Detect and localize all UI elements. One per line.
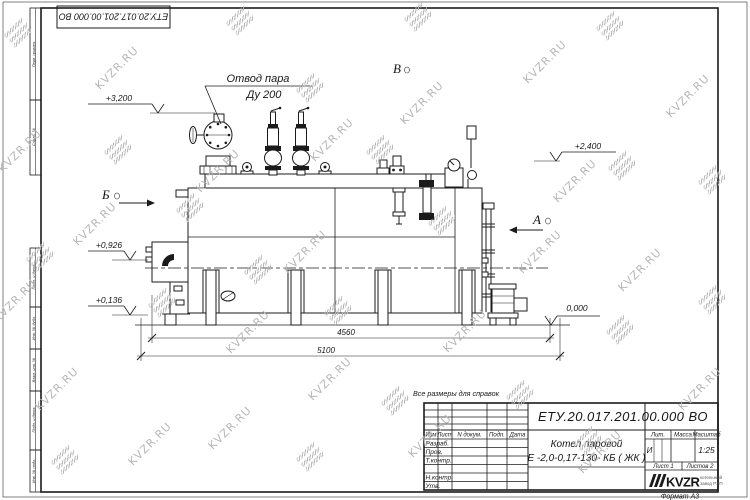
elevation-mark: +0,136	[88, 295, 148, 315]
elevation-mark: +2,400	[534, 141, 616, 161]
side-column-label: Инв. № подл.	[31, 459, 36, 484]
safety-valve	[293, 107, 310, 175]
col-header: Лист	[436, 433, 452, 439]
boiler-shell	[174, 174, 482, 313]
main-steam-valve	[190, 114, 237, 174]
view-letter: В	[393, 61, 401, 76]
title-block: ЕТУ.20.017.201.00.000 ВО Изм Лист N доку…	[424, 403, 723, 490]
support-leg	[375, 270, 391, 325]
elevation-value: 0,000	[566, 303, 588, 313]
sig-row-label: Н.контр.	[426, 475, 454, 482]
boiler-side-view	[135, 107, 570, 325]
sheets-total: Листов 2	[686, 464, 715, 470]
safety-valve	[265, 107, 282, 175]
dimension-5100: 5100	[137, 318, 564, 361]
blowdown-valve-assembly	[488, 284, 527, 325]
side-column-label: Перв. примен.	[31, 41, 36, 68]
side-column-label: Подп. и дата	[31, 407, 36, 433]
top-stamp-doc-number: ЕТУ.20.017.201.00.000 ВО	[59, 12, 168, 22]
elevation-mark: +3,200	[88, 93, 215, 113]
lit-value: И	[647, 446, 653, 455]
elevation-value: +0,136	[96, 295, 123, 305]
dimension-value: 4560	[337, 328, 355, 337]
sig-row-label: Разраб.	[426, 440, 450, 448]
sheet-number: Лист 1	[652, 464, 673, 470]
view-label-b: Б	[101, 187, 155, 207]
drawing-sheet: Перв. примен. Справ. № Подп. и дата Инв.…	[0, 0, 750, 500]
side-column-label: Справ. №	[31, 127, 36, 146]
kvzr-logo-text: KVZR	[666, 475, 701, 490]
front-nozzle	[174, 286, 182, 291]
sig-row-label: Т.контр.	[426, 458, 452, 465]
product-name: Котел паровой	[551, 439, 623, 450]
col-header: Подп.	[489, 433, 505, 439]
burner-assembly	[146, 242, 190, 325]
side-column-label: Подп. и дата	[31, 264, 36, 290]
callout-text: Отвод пара	[227, 73, 290, 85]
elevation-value: +2,400	[575, 141, 602, 151]
lifting-lug	[319, 163, 331, 175]
kvzr-logo-icon	[649, 474, 667, 487]
drawing-canvas: Перв. примен. Справ. № Подп. и дата Инв.…	[0, 0, 750, 500]
scale-value: 1:25	[698, 445, 715, 455]
support-leg	[459, 270, 475, 325]
dimension-value: 5100	[317, 346, 335, 355]
doc-number: ЕТУ.20.017.201.00.000 ВО	[538, 409, 708, 424]
sig-row-label: Пров.	[426, 449, 443, 456]
kvzr-logo: KVZR котельный завод РЭП	[649, 474, 723, 490]
callout-text: Ду 200	[245, 89, 283, 101]
lit-header: Лит.	[650, 433, 665, 439]
col-header: N докум.	[457, 433, 481, 439]
view-letter: Б	[101, 187, 110, 202]
view-letter: А	[532, 212, 541, 227]
side-column-label: Инв. № дубл.	[31, 316, 36, 341]
support-leg	[203, 270, 219, 325]
col-header: Дата	[509, 433, 526, 439]
sig-row-label: Утв.	[425, 483, 441, 490]
product-designation: Е -2,0-0,17-130- КБ ( ЖК )	[527, 453, 645, 464]
front-nozzle	[176, 300, 184, 305]
flanged-stub	[377, 156, 404, 174]
elevation-mark: +0,926	[88, 240, 148, 260]
elevation-value: +0,926	[96, 240, 123, 250]
kvzr-logo-subtext: завод РЭП	[700, 481, 723, 486]
pressure-gauge-assembly	[445, 126, 477, 188]
scale-header: Масштаб	[692, 433, 721, 439]
front-nozzle	[176, 190, 188, 197]
support-leg	[288, 270, 304, 325]
reference-note: Все размеры для справок	[413, 389, 500, 398]
view-label-v: В	[393, 61, 410, 76]
frame-side-columns: Перв. примен. Справ. № Подп. и дата Инв.…	[30, 8, 41, 492]
format-label: Формат А3	[661, 494, 699, 500]
col-header: Изм	[425, 433, 436, 439]
side-column-label: Взам. инв. №	[31, 357, 36, 382]
lifting-lug	[241, 163, 253, 175]
mass-header: Масса	[674, 433, 692, 439]
elevation-value: +3,200	[106, 93, 133, 103]
kvzr-logo-subtext: котельный	[700, 474, 722, 480]
view-label-a: А	[509, 212, 551, 234]
top-stamp: ЕТУ.20.017.201.00.000 ВО	[57, 6, 170, 28]
siphon-tube	[468, 171, 477, 180]
elevation-mark: 0,000	[545, 303, 600, 325]
